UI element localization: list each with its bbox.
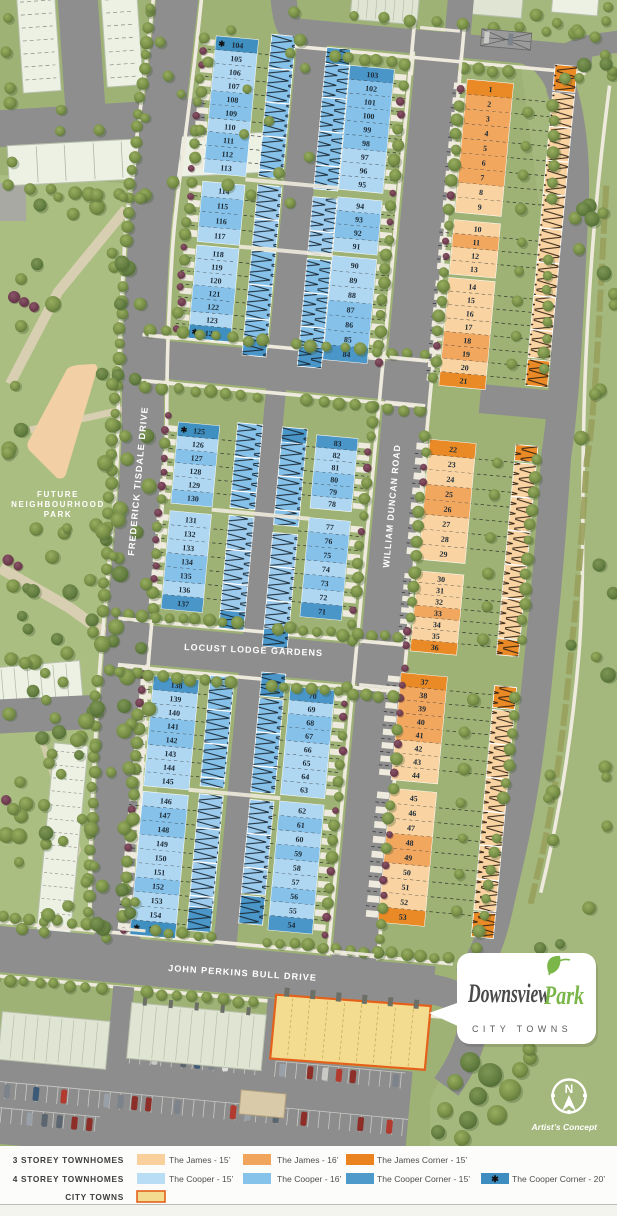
svg-text:38: 38 — [419, 691, 428, 701]
svg-text:PARK: PARK — [44, 510, 72, 519]
svg-text:152: 152 — [152, 882, 165, 892]
svg-text:109: 109 — [225, 109, 238, 119]
svg-text:146: 146 — [160, 796, 173, 806]
svg-text:50: 50 — [403, 868, 412, 878]
svg-text:10: 10 — [473, 225, 482, 235]
svg-text:✱: ✱ — [491, 1174, 499, 1184]
svg-text:20: 20 — [460, 363, 469, 373]
svg-text:86: 86 — [345, 320, 354, 330]
svg-text:11: 11 — [472, 238, 480, 248]
svg-text:36: 36 — [430, 643, 439, 653]
svg-text:125: 125 — [193, 426, 206, 436]
svg-text:79: 79 — [329, 487, 338, 497]
svg-text:43: 43 — [413, 757, 422, 767]
svg-text:129: 129 — [188, 480, 201, 490]
svg-text:73: 73 — [320, 579, 329, 589]
svg-text:41: 41 — [415, 731, 424, 741]
svg-text:137: 137 — [177, 599, 190, 609]
svg-text:80: 80 — [330, 475, 339, 485]
svg-text:30: 30 — [437, 575, 446, 585]
svg-text:76: 76 — [324, 536, 333, 546]
svg-text:FUTURE: FUTURE — [37, 490, 79, 499]
svg-text:99: 99 — [363, 125, 372, 135]
svg-text:122: 122 — [207, 302, 220, 312]
svg-text:148: 148 — [157, 825, 170, 835]
svg-text:94: 94 — [356, 202, 365, 212]
svg-text:92: 92 — [353, 228, 362, 238]
svg-text:153: 153 — [150, 896, 163, 906]
svg-text:N: N — [565, 1082, 574, 1096]
svg-text:37: 37 — [420, 677, 429, 687]
svg-text:25: 25 — [445, 490, 454, 500]
svg-text:NEIGHBOURHOOD: NEIGHBOURHOOD — [11, 500, 105, 509]
svg-text:135: 135 — [179, 571, 192, 581]
svg-text:58: 58 — [292, 863, 301, 873]
svg-text:149: 149 — [156, 839, 169, 849]
svg-text:40: 40 — [416, 717, 425, 727]
svg-text:128: 128 — [189, 467, 202, 477]
svg-text:75: 75 — [323, 551, 332, 561]
svg-text:✱: ✱ — [180, 425, 188, 435]
svg-text:53: 53 — [398, 912, 407, 922]
svg-text:110: 110 — [224, 122, 236, 132]
svg-text:136: 136 — [178, 585, 191, 595]
svg-text:121: 121 — [208, 289, 221, 299]
svg-text:82: 82 — [332, 451, 341, 461]
svg-text:133: 133 — [182, 543, 195, 553]
svg-text:81: 81 — [331, 463, 340, 473]
svg-text:The Cooper - 16’: The Cooper - 16’ — [277, 1174, 342, 1184]
svg-text:61: 61 — [296, 820, 305, 830]
svg-text:45: 45 — [409, 794, 418, 804]
svg-text:51: 51 — [401, 883, 410, 893]
svg-text:63: 63 — [300, 785, 309, 795]
svg-text:The James Corner - 15’: The James Corner - 15’ — [377, 1155, 467, 1165]
svg-text:118: 118 — [212, 249, 224, 259]
svg-text:13: 13 — [470, 265, 479, 275]
svg-text:19: 19 — [462, 349, 471, 359]
svg-text:98: 98 — [362, 139, 371, 149]
svg-text:Park: Park — [543, 981, 584, 1010]
svg-text:91: 91 — [352, 242, 361, 252]
svg-text:88: 88 — [348, 290, 357, 300]
svg-text:The James - 16’: The James - 16’ — [277, 1155, 339, 1165]
svg-text:104: 104 — [231, 40, 244, 50]
svg-text:12: 12 — [471, 251, 480, 261]
svg-text:105: 105 — [230, 54, 243, 64]
svg-text:123: 123 — [206, 315, 219, 325]
svg-text:90: 90 — [350, 261, 359, 271]
svg-text:89: 89 — [349, 276, 358, 286]
svg-text:78: 78 — [328, 499, 337, 509]
svg-text:15: 15 — [467, 296, 476, 306]
svg-text:95: 95 — [358, 180, 367, 190]
svg-text:52: 52 — [400, 897, 409, 907]
svg-text:140: 140 — [168, 708, 181, 718]
svg-text:31: 31 — [436, 586, 445, 596]
svg-text:CITY TOWNS: CITY TOWNS — [472, 1024, 572, 1034]
svg-text:93: 93 — [355, 215, 364, 225]
svg-text:132: 132 — [183, 529, 196, 539]
svg-text:46: 46 — [408, 808, 417, 818]
svg-text:39: 39 — [418, 704, 427, 714]
svg-text:CITY TOWNS: CITY TOWNS — [65, 1192, 124, 1202]
svg-text:103: 103 — [366, 70, 379, 80]
svg-text:108: 108 — [226, 95, 239, 105]
svg-text:44: 44 — [412, 771, 421, 781]
svg-text:42: 42 — [414, 744, 423, 754]
svg-text:The Cooper - 15’: The Cooper - 15’ — [169, 1174, 234, 1184]
svg-text:68: 68 — [306, 718, 315, 728]
svg-text:62: 62 — [298, 806, 307, 816]
svg-text:112: 112 — [221, 150, 233, 160]
svg-text:96: 96 — [359, 166, 368, 176]
svg-text:130: 130 — [187, 494, 200, 504]
svg-text:24: 24 — [446, 475, 455, 485]
svg-text:67: 67 — [305, 732, 314, 742]
svg-text:100: 100 — [362, 111, 375, 121]
svg-text:49: 49 — [404, 853, 413, 863]
svg-text:14: 14 — [468, 282, 477, 292]
svg-text:4 STOREY TOWNHOMES: 4 STOREY TOWNHOMES — [13, 1174, 124, 1184]
svg-text:71: 71 — [318, 607, 327, 617]
svg-text:77: 77 — [326, 522, 335, 532]
svg-text:59: 59 — [294, 849, 303, 859]
svg-text:141: 141 — [167, 722, 180, 732]
svg-text:The Cooper Corner - 15’: The Cooper Corner - 15’ — [377, 1174, 470, 1184]
svg-text:97: 97 — [360, 153, 369, 163]
svg-text:60: 60 — [295, 835, 304, 845]
svg-text:33: 33 — [434, 609, 443, 619]
svg-text:120: 120 — [209, 276, 222, 286]
svg-text:87: 87 — [346, 305, 355, 315]
svg-text:55: 55 — [289, 906, 298, 916]
svg-text:154: 154 — [149, 910, 162, 920]
svg-text:143: 143 — [164, 749, 177, 759]
svg-text:131: 131 — [185, 515, 198, 525]
svg-text:The Cooper Corner - 20’: The Cooper Corner - 20’ — [512, 1174, 605, 1184]
svg-text:26: 26 — [443, 505, 452, 515]
svg-text:134: 134 — [181, 557, 194, 567]
svg-text:57: 57 — [291, 877, 300, 887]
svg-text:The James - 15’: The James - 15’ — [169, 1155, 231, 1165]
svg-text:139: 139 — [169, 694, 182, 704]
svg-text:147: 147 — [158, 811, 171, 821]
svg-text:32: 32 — [435, 597, 444, 607]
svg-text:56: 56 — [290, 892, 299, 902]
svg-text:106: 106 — [229, 68, 242, 78]
svg-text:66: 66 — [303, 745, 312, 755]
svg-text:151: 151 — [153, 867, 166, 877]
svg-text:150: 150 — [154, 853, 167, 863]
svg-text:101: 101 — [364, 97, 377, 107]
svg-text:16: 16 — [465, 309, 474, 319]
svg-text:142: 142 — [165, 735, 178, 745]
svg-text:29: 29 — [439, 549, 448, 559]
svg-text:22: 22 — [449, 445, 458, 455]
svg-text:18: 18 — [463, 336, 472, 346]
svg-text:Downsview: Downsview — [467, 979, 550, 1008]
svg-text:47: 47 — [407, 823, 416, 833]
svg-text:115: 115 — [216, 201, 228, 211]
svg-text:74: 74 — [322, 565, 331, 575]
svg-text:72: 72 — [319, 593, 328, 603]
svg-text:145: 145 — [161, 776, 174, 786]
svg-text:64: 64 — [301, 772, 310, 782]
svg-text:65: 65 — [302, 758, 311, 768]
svg-text:116: 116 — [215, 216, 227, 226]
svg-text:17: 17 — [464, 322, 473, 332]
svg-text:126: 126 — [192, 440, 205, 450]
svg-text:119: 119 — [211, 263, 223, 273]
svg-text:111: 111 — [223, 136, 235, 146]
svg-text:107: 107 — [227, 81, 240, 91]
svg-text:Artist’s Concept: Artist’s Concept — [531, 1122, 599, 1132]
svg-text:54: 54 — [287, 920, 296, 930]
svg-text:144: 144 — [163, 763, 176, 773]
svg-text:102: 102 — [365, 84, 378, 94]
svg-text:27: 27 — [442, 520, 451, 530]
svg-text:127: 127 — [190, 453, 203, 463]
svg-text:21: 21 — [459, 376, 468, 386]
svg-text:3 STOREY TOWNHOMES: 3 STOREY TOWNHOMES — [13, 1155, 124, 1165]
svg-text:23: 23 — [447, 460, 456, 470]
svg-text:28: 28 — [440, 535, 449, 545]
svg-text:113: 113 — [220, 163, 232, 173]
svg-text:✱: ✱ — [218, 39, 226, 49]
svg-text:35: 35 — [431, 631, 440, 641]
svg-text:117: 117 — [214, 231, 226, 241]
svg-text:69: 69 — [307, 705, 316, 715]
svg-text:83: 83 — [333, 439, 342, 449]
svg-text:48: 48 — [405, 838, 414, 848]
svg-text:34: 34 — [433, 620, 442, 630]
